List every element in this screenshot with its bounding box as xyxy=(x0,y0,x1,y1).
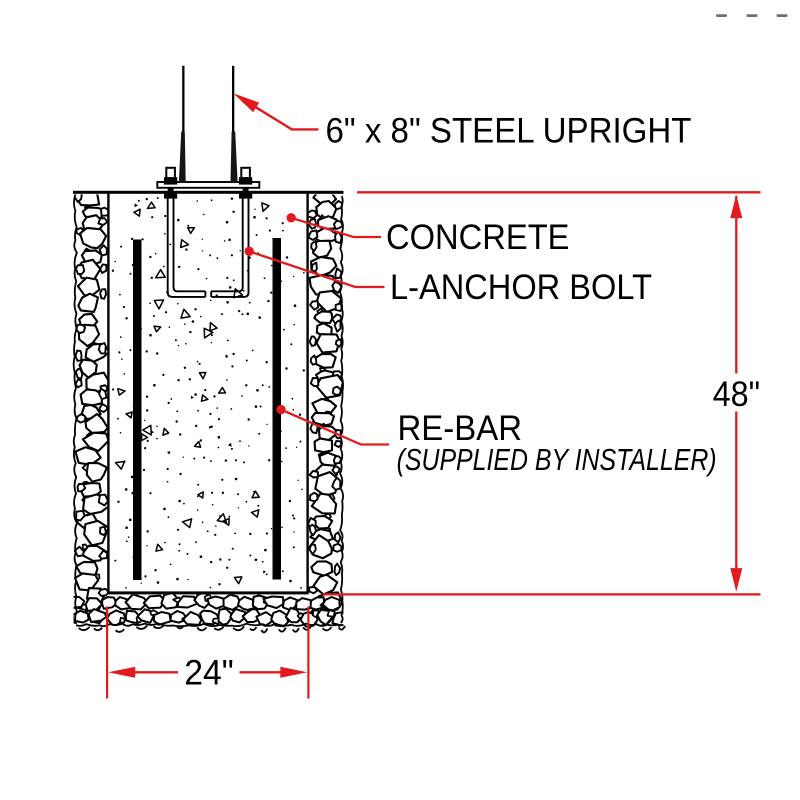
svg-text:48": 48" xyxy=(713,375,761,414)
svg-text:6" x 8" STEEL UPRIGHT: 6" x 8" STEEL UPRIGHT xyxy=(326,111,692,150)
svg-text:24": 24" xyxy=(184,653,234,692)
svg-text:L-ANCHOR BOLT: L-ANCHOR BOLT xyxy=(390,268,652,307)
svg-text:CONCRETE: CONCRETE xyxy=(386,218,570,257)
svg-text:(SUPPLIED BY INSTALLER): (SUPPLIED BY INSTALLER) xyxy=(397,442,717,477)
